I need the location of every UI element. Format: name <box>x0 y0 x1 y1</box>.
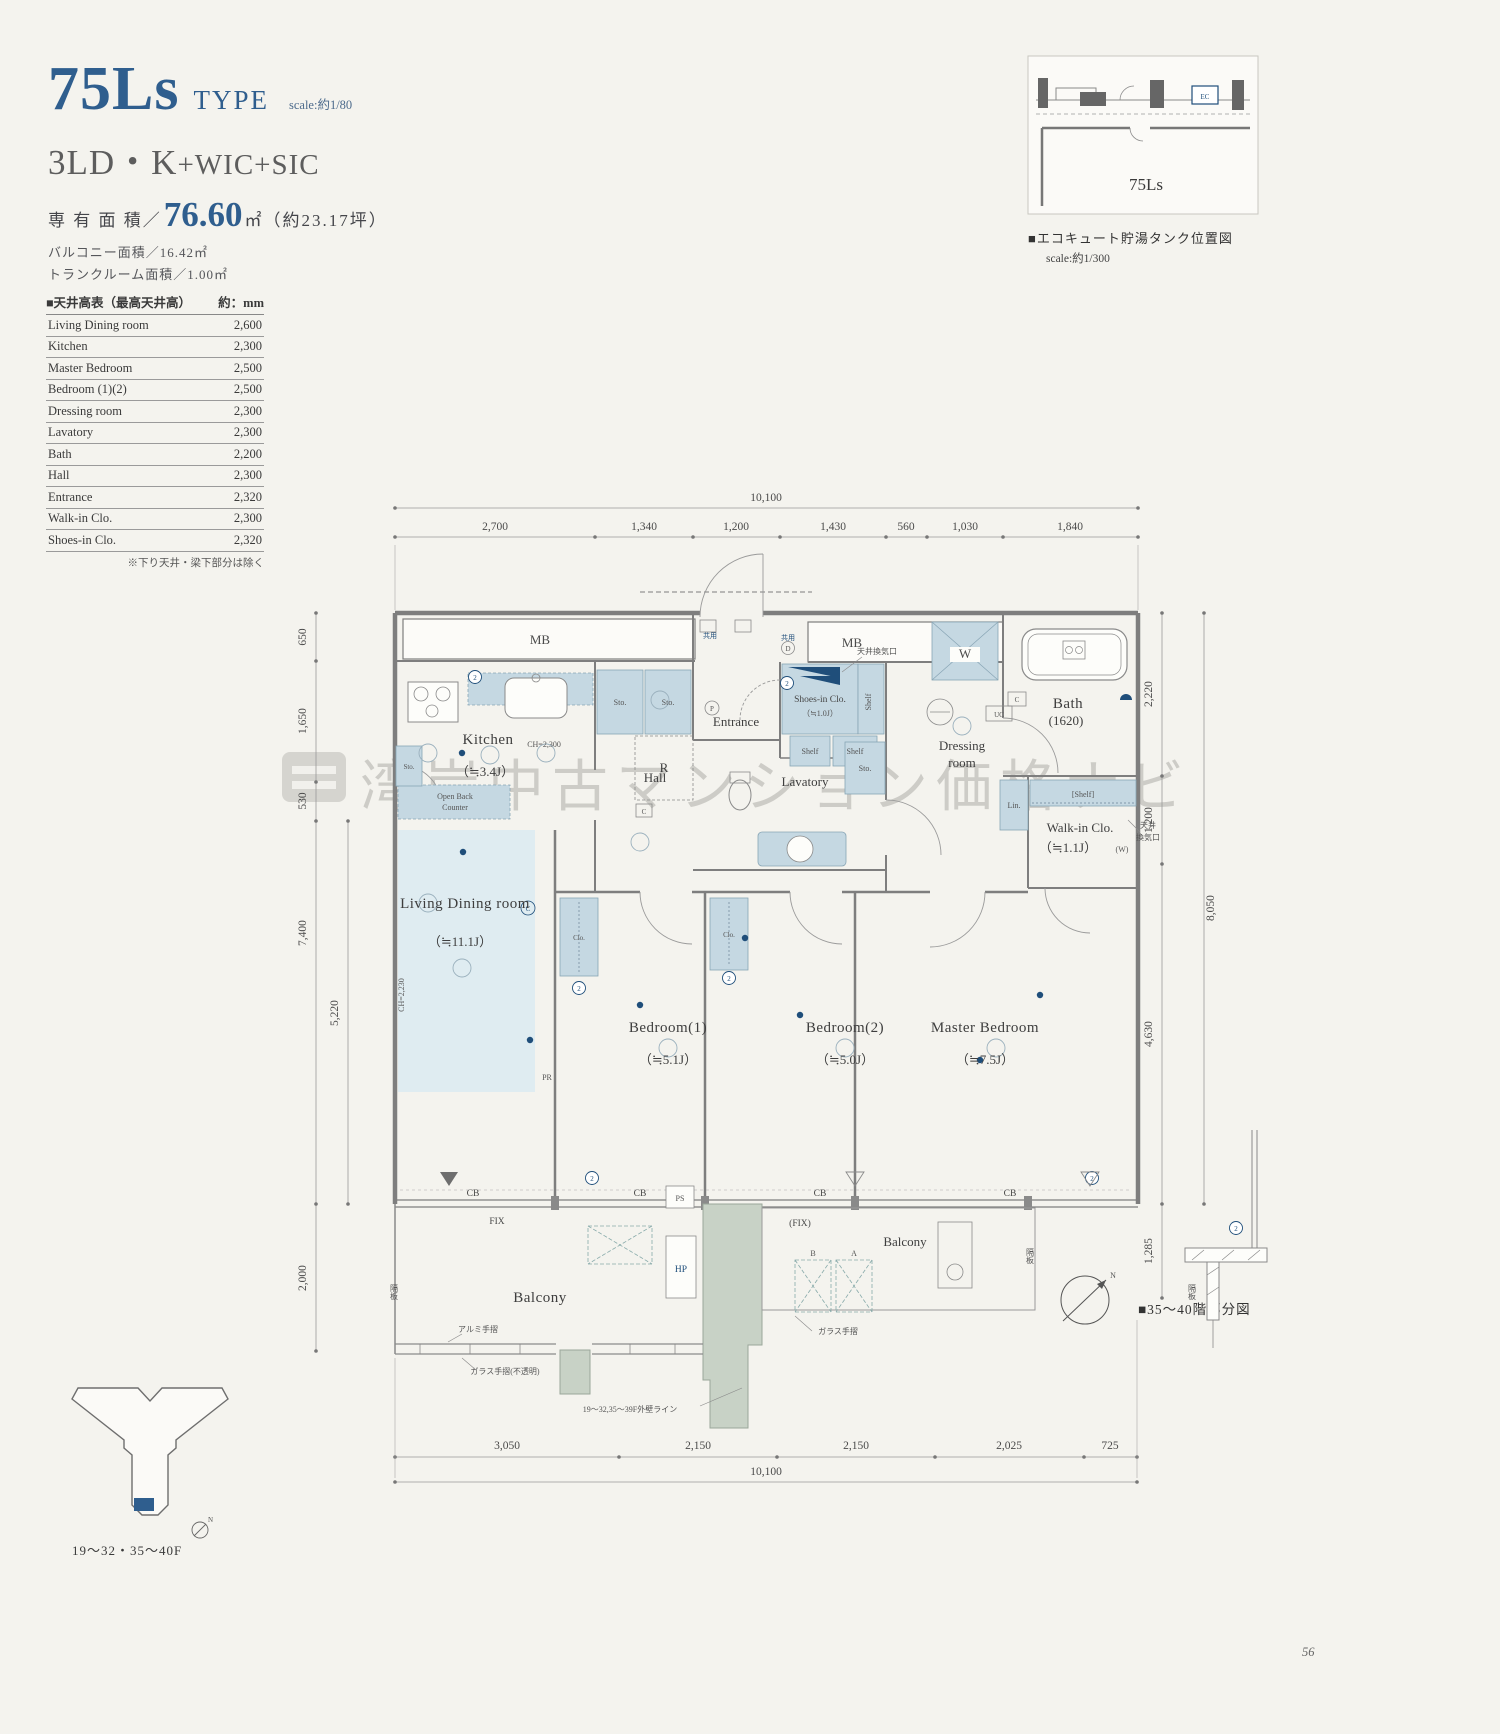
dim-left-5: 5,220 <box>329 1000 341 1026</box>
closet-label: Clo. <box>723 931 735 939</box>
kyoyo-label: 共用 <box>703 631 717 640</box>
partial-section-figure: 2 隔板 <box>1185 1130 1267 1348</box>
bath-label: Bath <box>1053 696 1083 712</box>
meter-box <box>735 620 751 632</box>
circled-2: 2 <box>590 1175 594 1183</box>
faucet-icon <box>1120 694 1132 700</box>
door-triangle-icon <box>440 1172 458 1186</box>
ceiling-vent-note: 天井換気口 <box>857 646 897 656</box>
dim-top-total: 10,100 <box>750 492 782 504</box>
closet-label: Clo. <box>573 934 585 942</box>
balcony-label: Balcony <box>883 1234 927 1249</box>
cb-label: CB <box>814 1189 827 1199</box>
pr-label: PR <box>542 1073 552 1082</box>
partition-panel-note: 隔板 <box>390 1284 399 1301</box>
dim-top-7: 1,840 <box>1057 521 1083 533</box>
ld-ch-note: CH=2,230 <box>397 978 406 1012</box>
a-label: A <box>851 1249 857 1258</box>
dim-bottom-4: 2,025 <box>996 1440 1022 1452</box>
cb-label: CB <box>467 1189 480 1199</box>
left-dimensions: 650 1,650 530 7,400 5,220 2,000 <box>297 611 350 1353</box>
dim-bottom-2: 2,150 <box>685 1440 711 1452</box>
compass-n-label: N <box>1110 1271 1116 1280</box>
aluminum-rail-note: アルミ手摺 <box>458 1324 498 1334</box>
circled-d: D <box>785 645 790 653</box>
bedroom2-size: （≒5.0J） <box>816 1052 874 1067</box>
wic-shelf-label: [Shelf] <box>1072 790 1095 799</box>
kitchen-label: Kitchen <box>463 732 514 748</box>
b-label: B <box>810 1249 815 1258</box>
dim-right-4: 4,630 <box>1143 1021 1155 1047</box>
partition-panel-note: 隔板 <box>1188 1284 1197 1301</box>
top-dimensions: 10,100 2,700 1,340 1,200 1,430 560 1,030… <box>393 492 1140 610</box>
dim-top-3: 1,200 <box>723 521 749 533</box>
dim-top-1: 2,700 <box>482 521 508 533</box>
stove-icon <box>408 682 458 722</box>
circled-2: 2 <box>785 680 789 688</box>
dim-top-6: 1,030 <box>952 521 978 533</box>
outer-wall-protrusion <box>703 1204 762 1428</box>
ceiling-vent-note-1: 天井 <box>1140 820 1156 830</box>
shelf-label: Shelf <box>802 747 819 756</box>
living-dining-floor <box>398 830 535 1092</box>
dim-right-3: 8,050 <box>1205 895 1217 921</box>
building-key-figure: N <box>72 1388 228 1538</box>
cb-label: CB <box>1004 1189 1017 1199</box>
glass-rail-opaque-note: ガラス手摺(不透明) <box>470 1366 540 1376</box>
right-dimensions: 2,220 1,200 8,050 4,630 1,285 <box>1143 611 1217 1300</box>
partition-panel-note: 隔板 <box>1026 1248 1035 1265</box>
dim-left-4: 7,400 <box>297 920 309 946</box>
master-bedroom-size: （≒7.5J） <box>956 1052 1014 1067</box>
storage-label: Sto. <box>614 698 627 707</box>
c-label: C <box>1015 696 1020 704</box>
floor-plan-canvas: 湾岸中古マンション価格ナビ 10,100 2,700 1,340 1,200 1… <box>0 0 1500 1734</box>
bath-size: (1620) <box>1049 713 1084 728</box>
hp-label: HP <box>675 1265 687 1275</box>
bathtub-icon <box>1022 629 1127 680</box>
circled-p: P <box>710 705 714 713</box>
cb-label: CB <box>634 1189 647 1199</box>
entrance-label: Entrance <box>713 714 759 729</box>
outer-wall-line-note: 19〜32,35〜39F外壁ライン <box>583 1404 677 1414</box>
unit-location-marker <box>134 1498 154 1511</box>
refrigerator-label: R <box>660 760 669 775</box>
ec-label: EC <box>1201 93 1210 101</box>
ceiling-vent-note-2: 換気口 <box>1136 832 1160 842</box>
dim-bottom-total: 10,100 <box>750 1466 782 1478</box>
bedroom1-label: Bedroom(1) <box>629 1020 707 1036</box>
kitchen-sink-icon <box>505 678 567 718</box>
balcony-label: Balcony <box>513 1290 567 1306</box>
walk-in-closet-size: （≒1.1J） <box>1039 840 1097 855</box>
wall-step <box>560 1350 590 1394</box>
dim-bottom-3: 2,150 <box>843 1440 869 1452</box>
washing-machine-label: W <box>959 646 972 661</box>
c-label: C <box>642 808 647 816</box>
shelf-label: Shelf <box>847 747 864 756</box>
circled-2: 2 <box>473 674 477 682</box>
mb-label: MB <box>530 632 551 647</box>
ps-label: PS <box>676 1194 685 1203</box>
dim-left-1: 650 <box>297 628 309 646</box>
dim-bottom-1: 3,050 <box>494 1440 520 1452</box>
walk-in-closet-w: (W) <box>1116 845 1129 854</box>
dressing-room-label-1: Dressing <box>939 738 986 753</box>
storage-label: Sto. <box>859 764 872 773</box>
compass-icon: N <box>1061 1271 1116 1324</box>
glass-rail-note: ガラス手摺 <box>818 1326 858 1336</box>
circled-2: 2 <box>577 985 581 993</box>
balcony-zone: CB CB CB CB PS FIX (FIX) B A <box>390 1186 1131 1428</box>
circled-2: 2 <box>1234 1225 1238 1233</box>
equipment-box <box>938 1222 972 1288</box>
walk-in-closet-label: Walk-in Clo. <box>1047 820 1114 835</box>
fix-paren-label: (FIX) <box>789 1218 811 1229</box>
kyoyo-label: 共用 <box>781 633 795 642</box>
linen-label: Lin. <box>1007 801 1020 810</box>
dim-bottom-5: 725 <box>1101 1440 1119 1452</box>
kitchen-size: （≒3.4J） <box>456 764 514 779</box>
meter-box <box>700 620 716 632</box>
open-back-counter-label-1: Open Back <box>437 792 473 801</box>
building-compass-n: N <box>208 1516 213 1524</box>
washbasin-icon <box>787 836 813 862</box>
shelf-label: Shelf <box>864 693 873 710</box>
living-dining-size: （≒11.1J） <box>428 934 492 949</box>
open-back-counter-label-2: Counter <box>442 803 468 812</box>
kitchen-ch-note: CH=2,300 <box>527 740 561 749</box>
lavatory-label: Lavatory <box>782 774 829 789</box>
uc-label: UC <box>994 711 1004 719</box>
floor-tints <box>398 830 535 1092</box>
dressing-room-label-2: room <box>948 755 975 770</box>
building-outline <box>72 1388 228 1515</box>
keymap-figure: EC 75Ls <box>1028 56 1258 214</box>
dim-right-1: 2,220 <box>1143 681 1155 707</box>
dim-top-2: 1,340 <box>631 521 657 533</box>
fix-label: FIX <box>489 1217 504 1227</box>
shoes-in-closet-size: （≒1.0J） <box>802 709 838 718</box>
dim-left-6: 2,000 <box>297 1265 309 1291</box>
dim-left-3: 530 <box>297 792 309 810</box>
open-back-counter <box>398 785 510 819</box>
circled-2: 2 <box>727 975 731 983</box>
dim-top-4: 1,430 <box>820 521 846 533</box>
shoes-in-closet-label: Shoes-in Clo. <box>794 695 846 705</box>
watermark-logo-icon <box>282 752 346 802</box>
dim-top-5: 560 <box>897 521 915 533</box>
storage-label: Sto. <box>403 763 414 771</box>
storage-label: Sto. <box>662 698 675 707</box>
living-dining-label: Living Dining room <box>400 896 530 912</box>
dim-left-2: 1,650 <box>297 708 309 734</box>
bedroom2-label: Bedroom(2) <box>806 1020 884 1036</box>
dim-right-5: 1,285 <box>1143 1238 1155 1264</box>
bedroom1-size: （≒5.1J） <box>639 1052 697 1067</box>
master-bedroom-label: Master Bedroom <box>931 1020 1039 1036</box>
keymap-unit-label: 75Ls <box>1129 175 1163 194</box>
